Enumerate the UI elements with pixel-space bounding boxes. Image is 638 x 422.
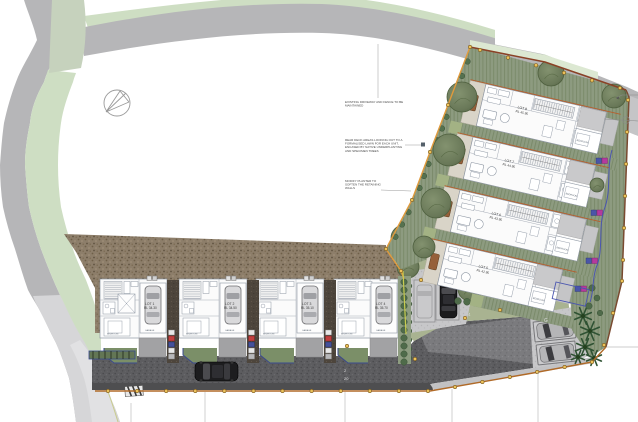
svg-text:GARAGE: GARAGE (145, 329, 155, 332)
svg-text:GARAGE: GARAGE (302, 329, 312, 332)
svg-text:GARAGE: GARAGE (376, 329, 386, 332)
svg-text:WALLS: WALLS (345, 186, 355, 190)
svg-text:G: G (544, 318, 548, 324)
svg-text:BEDROOM: BEDROOM (107, 334, 118, 336)
svg-text:RL 35.10: RL 35.10 (301, 306, 314, 310)
svg-text:RL 34.30: RL 34.30 (144, 306, 157, 310)
svg-text:RL 35.70: RL 35.70 (375, 306, 388, 310)
svg-text:GARAGE: GARAGE (225, 329, 235, 332)
svg-text:BEDROOM: BEDROOM (186, 334, 197, 336)
svg-text:RL 34.50: RL 34.50 (224, 306, 237, 310)
svg-text:BEDROOM: BEDROOM (341, 334, 352, 336)
svg-text:MAINTAINED: MAINTAINED (345, 104, 364, 108)
svg-text:BEDROOM: BEDROOM (263, 334, 274, 336)
svg-text:AND SPECIMEN TREES: AND SPECIMEN TREES (345, 149, 379, 153)
svg-text:20: 20 (344, 376, 349, 381)
